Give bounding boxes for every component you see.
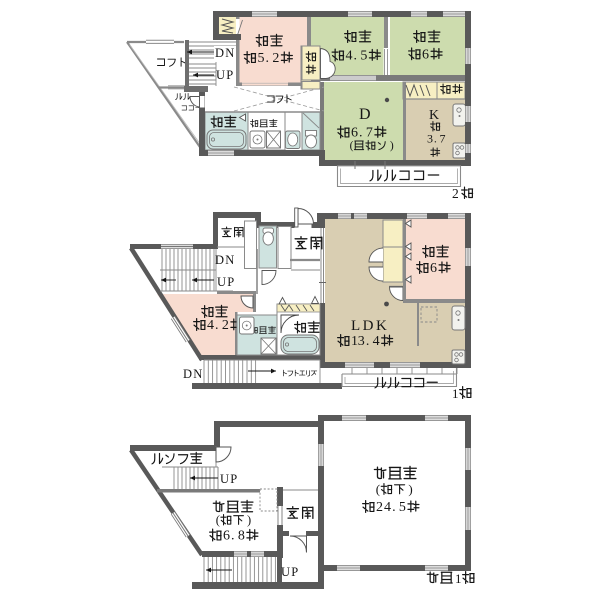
svg-text:5: 5 [258, 51, 265, 66]
svg-text:(: ( [216, 513, 220, 527]
svg-text:6: 6 [422, 47, 429, 62]
svg-text:6: 6 [223, 529, 230, 544]
svg-text:K: K [429, 108, 439, 123]
svg-text:UP: UP [216, 68, 234, 82]
svg-text:4: 4 [207, 318, 214, 333]
svg-text:(: ( [376, 482, 380, 497]
svg-text:4: 4 [346, 49, 353, 64]
svg-text:.: . [266, 51, 270, 66]
svg-text:5: 5 [399, 500, 406, 515]
svg-text:4: 4 [373, 334, 380, 349]
svg-text:1: 1 [455, 571, 462, 586]
svg-text:.: . [392, 500, 396, 515]
svg-text:UP: UP [217, 275, 235, 289]
svg-text:): ) [247, 513, 251, 527]
svg-text:2: 2 [452, 186, 459, 201]
svg-text:DN: DN [215, 46, 235, 60]
svg-text:6: 6 [430, 261, 437, 276]
svg-text:UP: UP [281, 565, 299, 579]
svg-text:.: . [434, 131, 437, 145]
svg-text:7: 7 [440, 131, 446, 145]
svg-text:): ) [390, 140, 394, 152]
svg-text:.: . [366, 334, 370, 349]
svg-text:2: 2 [222, 318, 229, 333]
svg-text:.: . [359, 126, 363, 141]
svg-text:UP: UP [220, 472, 238, 486]
svg-text:4: 4 [384, 500, 391, 515]
svg-text:8: 8 [238, 529, 245, 544]
svg-text:DN: DN [183, 367, 203, 381]
svg-text:(: ( [350, 140, 354, 152]
svg-text:LDK: LDK [351, 318, 389, 334]
svg-text:DN: DN [215, 253, 235, 267]
svg-text:.: . [354, 49, 358, 64]
svg-text:): ) [408, 482, 412, 497]
svg-text:3: 3 [427, 131, 433, 145]
svg-text:6: 6 [351, 126, 358, 141]
svg-text:D: D [359, 106, 371, 123]
svg-text:.: . [231, 529, 235, 544]
svg-text:2: 2 [376, 500, 383, 515]
svg-text:2: 2 [272, 51, 279, 66]
svg-text:7: 7 [366, 126, 373, 141]
svg-text:.: . [215, 318, 219, 333]
svg-text:1: 1 [452, 386, 459, 401]
svg-text:5: 5 [360, 49, 367, 64]
svg-text:3: 3 [358, 334, 365, 349]
